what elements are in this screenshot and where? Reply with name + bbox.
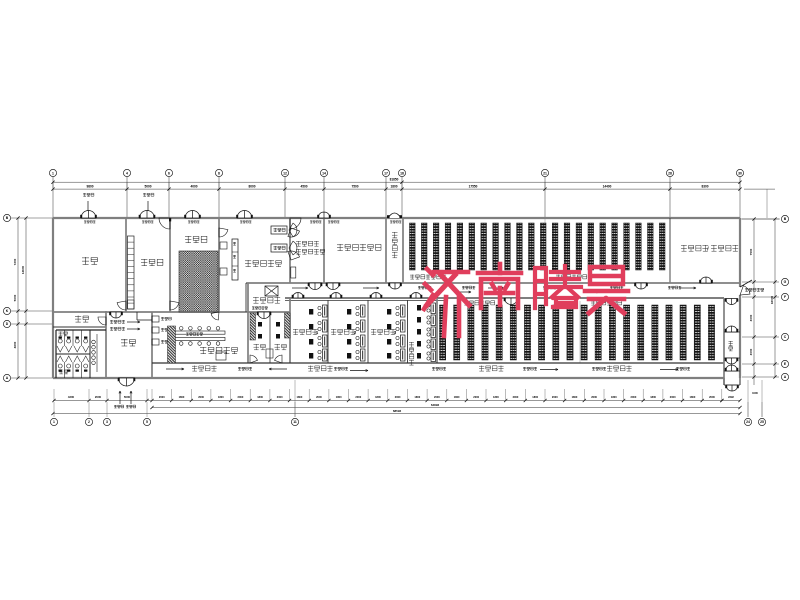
svg-text:7500: 7500 xyxy=(749,248,753,255)
svg-text:G: G xyxy=(784,280,787,284)
svg-text:1800: 1800 xyxy=(297,395,303,399)
svg-text:2000: 2000 xyxy=(552,395,558,399)
svg-text:4600: 4600 xyxy=(13,341,17,348)
svg-text:4000: 4000 xyxy=(749,314,753,321)
svg-text:F: F xyxy=(784,295,786,299)
svg-text:1800: 1800 xyxy=(650,395,656,399)
svg-text:3: 3 xyxy=(106,420,108,424)
svg-text:25: 25 xyxy=(760,420,764,424)
svg-text:2000: 2000 xyxy=(473,395,479,399)
svg-text:5: 5 xyxy=(146,420,148,424)
svg-text:7500: 7500 xyxy=(351,184,358,188)
svg-text:2000: 2000 xyxy=(238,395,244,399)
svg-text:2000: 2000 xyxy=(316,395,322,399)
svg-text:3000: 3000 xyxy=(749,348,753,355)
svg-text:2000: 2000 xyxy=(395,395,401,399)
svg-text:8: 8 xyxy=(218,171,220,175)
svg-text:17: 17 xyxy=(384,171,388,175)
svg-text:16000: 16000 xyxy=(770,295,774,304)
svg-text:9800: 9800 xyxy=(86,184,93,188)
svg-text:2000: 2000 xyxy=(434,395,440,399)
svg-text:2000: 2000 xyxy=(159,395,165,399)
svg-text:4000: 4000 xyxy=(190,184,197,188)
svg-text:1800: 1800 xyxy=(572,395,578,399)
svg-text:17550: 17550 xyxy=(469,184,478,188)
svg-text:14: 14 xyxy=(322,171,326,175)
svg-text:2: 2 xyxy=(88,420,90,424)
svg-text:28: 28 xyxy=(668,171,672,175)
svg-text:5000: 5000 xyxy=(13,294,17,301)
svg-text:81850: 81850 xyxy=(390,178,399,182)
svg-text:1800: 1800 xyxy=(375,395,381,399)
svg-text:2000: 2000 xyxy=(591,395,597,399)
svg-text:30: 30 xyxy=(738,171,742,175)
svg-text:2000: 2000 xyxy=(277,395,283,399)
svg-text:5000: 5000 xyxy=(124,395,131,399)
svg-text:2000: 2000 xyxy=(709,395,715,399)
svg-text:7200: 7200 xyxy=(13,258,17,265)
svg-text:21: 21 xyxy=(543,171,547,175)
svg-text:5000: 5000 xyxy=(144,184,151,188)
svg-text:1800: 1800 xyxy=(218,395,224,399)
svg-text:1800: 1800 xyxy=(414,395,420,399)
svg-text:24: 24 xyxy=(746,420,750,424)
svg-text:2000: 2000 xyxy=(198,395,204,399)
svg-text:2000: 2000 xyxy=(355,395,361,399)
svg-text:1800: 1800 xyxy=(257,395,263,399)
svg-text:1: 1 xyxy=(53,420,55,424)
svg-text:1800: 1800 xyxy=(390,184,397,188)
svg-text:4500: 4500 xyxy=(300,184,307,188)
svg-text:1800: 1800 xyxy=(611,395,617,399)
svg-text:14400: 14400 xyxy=(603,184,612,188)
svg-text:12: 12 xyxy=(283,171,287,175)
svg-text:2000: 2000 xyxy=(670,395,676,399)
svg-text:11: 11 xyxy=(293,420,297,424)
svg-text:1800: 1800 xyxy=(336,395,342,399)
svg-text:8000: 8000 xyxy=(248,184,255,188)
svg-text:8300: 8300 xyxy=(701,184,708,188)
svg-text:68592: 68592 xyxy=(393,409,402,413)
svg-text:64892: 64892 xyxy=(431,403,440,407)
svg-text:6: 6 xyxy=(168,171,170,175)
svg-text:14600: 14600 xyxy=(21,265,25,274)
svg-text:4: 4 xyxy=(126,171,128,175)
svg-text:1000: 1000 xyxy=(752,391,758,395)
svg-text:1800: 1800 xyxy=(690,395,696,399)
svg-text:1800: 1800 xyxy=(532,395,538,399)
svg-text:2392: 2392 xyxy=(728,395,734,399)
svg-text:2000: 2000 xyxy=(95,395,102,399)
svg-text:1800: 1800 xyxy=(454,395,460,399)
svg-text:4300: 4300 xyxy=(68,395,75,399)
svg-text:18: 18 xyxy=(400,171,404,175)
svg-text:1: 1 xyxy=(52,171,54,175)
svg-text:2000: 2000 xyxy=(631,395,637,399)
svg-text:2000: 2000 xyxy=(513,395,519,399)
svg-text:1800: 1800 xyxy=(179,395,185,399)
svg-text:1800: 1800 xyxy=(493,395,499,399)
